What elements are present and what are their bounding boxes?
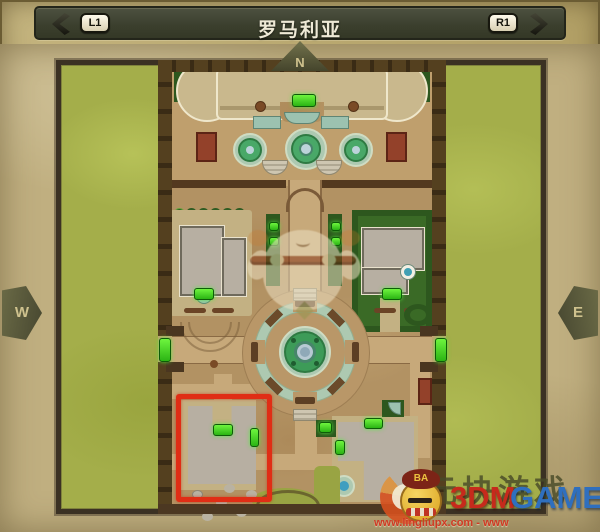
inner-wall	[172, 180, 286, 188]
map-title: 罗马利亚	[36, 15, 564, 42]
mascot-claw	[248, 230, 268, 246]
game-screen: N W E 元块游戏 BA 3DM GAME www.lingliupx.com…	[0, 0, 600, 532]
door-marker	[382, 288, 402, 300]
inner-wall	[318, 180, 432, 188]
residence-east	[362, 228, 424, 270]
brand-watermark: 元块游戏 BA 3DM GAME www.lingliupx.com - www	[374, 458, 600, 532]
bench	[251, 342, 258, 362]
yard-path	[380, 298, 400, 332]
fence-bar	[184, 308, 206, 313]
door-marker	[319, 422, 332, 433]
mascot-mouth	[296, 238, 310, 247]
compass-west-label: W	[15, 304, 29, 321]
compass-north-label: N	[295, 55, 304, 70]
fountain-spout	[352, 146, 360, 154]
flower-planter	[386, 132, 407, 162]
residence-west	[180, 226, 224, 296]
r1-shoulder-button[interactable]: R1	[488, 13, 518, 33]
door-marker	[292, 94, 316, 107]
tree-dot	[255, 101, 266, 112]
brand-mascot-glasses	[408, 498, 432, 503]
door-marker	[335, 440, 345, 455]
compass-east-label: E	[573, 304, 583, 321]
chevron-right-icon	[530, 13, 548, 35]
flower-planter	[418, 378, 432, 405]
bush	[410, 309, 426, 321]
city-wall-east	[432, 60, 446, 514]
bench	[295, 397, 315, 404]
bench	[352, 342, 359, 362]
residence-west-annex	[222, 238, 246, 296]
mascot-hand	[322, 254, 336, 266]
door-marker	[435, 338, 447, 362]
fountain-spout	[300, 347, 310, 357]
brand-game-text: GAME	[510, 480, 600, 516]
flower-planter	[196, 132, 217, 162]
map-header: L1 罗马利亚 R1	[34, 6, 566, 40]
door-marker	[364, 418, 383, 429]
plaza-stairs	[293, 409, 317, 421]
fountain-spout	[299, 142, 313, 156]
door-marker	[159, 338, 171, 362]
brand-url-text: www.lingliupx.com - www	[374, 517, 509, 529]
door-marker	[194, 288, 214, 300]
mascot-hand	[270, 254, 284, 266]
fountain-dots	[291, 338, 296, 343]
teal-drop-dot	[404, 268, 412, 276]
brand-mascot-beret: BA	[402, 469, 440, 489]
highlight-rectangle	[176, 394, 272, 502]
mascot-claw	[340, 230, 360, 246]
palace-pool	[253, 116, 281, 129]
mascot-stick	[250, 256, 356, 265]
next-map-button[interactable]	[530, 13, 548, 35]
palace-pool	[321, 116, 349, 129]
tree-dot	[348, 101, 359, 112]
brand-3dm-text: 3DM	[450, 480, 515, 516]
mascot-watermark	[248, 214, 360, 318]
gate-post	[166, 326, 184, 336]
brand-mascot-scarf	[406, 508, 436, 516]
fountain-spout	[246, 146, 254, 154]
small-fountain-water	[339, 481, 349, 491]
city-wall-west	[158, 60, 172, 514]
